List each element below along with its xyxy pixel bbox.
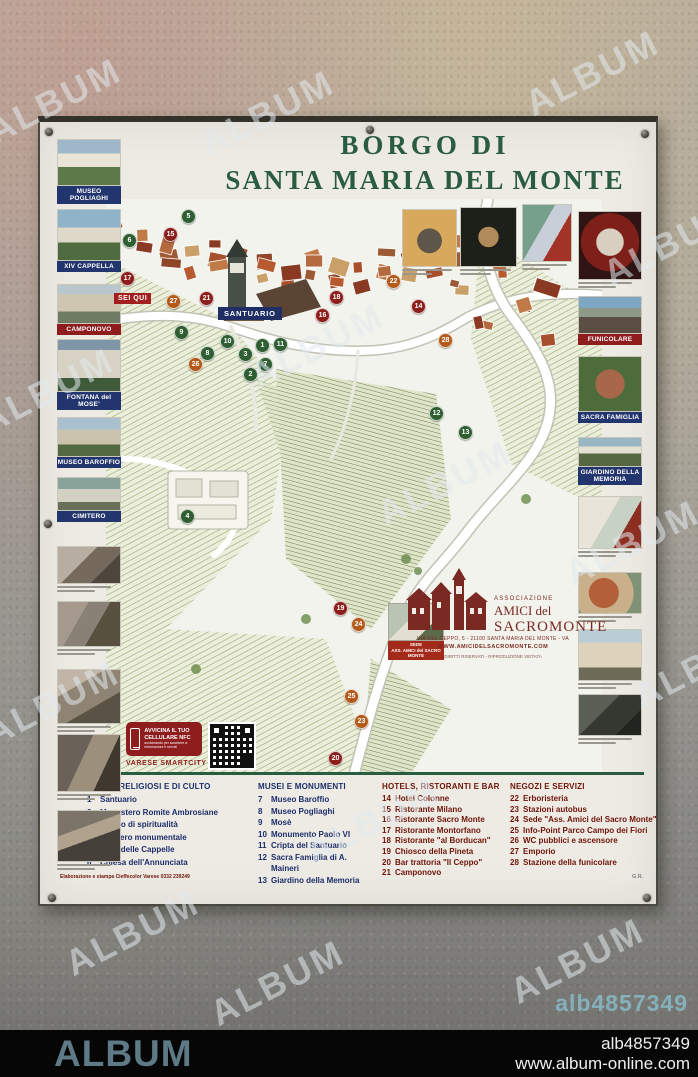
map-marker-21: 21 bbox=[199, 291, 214, 306]
association-logo-block: ASSOCIAZIONE AMICI del SACROMONTE VIA DE… bbox=[402, 564, 584, 662]
screw-bottom-left bbox=[48, 894, 56, 902]
legend-item: 19Chiosco della Pineta bbox=[382, 847, 508, 858]
map-marker-15: 15 bbox=[163, 227, 178, 242]
thumbnail-item: CAMPONOVO bbox=[57, 284, 121, 335]
legend-column-title: MUSEI E MONUMENTI bbox=[258, 782, 376, 791]
screw-left-middle bbox=[44, 520, 52, 528]
legend-item: 7Museo Baroffio bbox=[258, 794, 376, 806]
thumbnail-caption bbox=[578, 683, 642, 689]
legend-item: 8Museo Pogliaghi bbox=[258, 806, 376, 818]
legend-item: 25Info-Point Parco Campo dei Fiori bbox=[510, 826, 658, 837]
legend-item: 18Ristorante "al Borducan" bbox=[382, 836, 508, 847]
map-marker-22: 22 bbox=[386, 274, 401, 289]
association-name-2: SACROMONTE bbox=[494, 619, 584, 636]
legend-item: 26WC pubblici e ascensore bbox=[510, 836, 658, 847]
thumbnail-item bbox=[578, 629, 642, 689]
nfc-line-1: AVVICINA IL TUO bbox=[144, 728, 198, 735]
thumbnail-photo bbox=[57, 734, 121, 792]
legend-item: 22Erboristeria bbox=[510, 794, 658, 805]
legend-item: 15Ristorante Milano bbox=[382, 805, 508, 816]
print-credits: Elaborazione e stampa Cieffecolor Varese… bbox=[60, 874, 190, 880]
thumbnail-photo bbox=[57, 669, 121, 724]
map-marker-27: 27 bbox=[166, 294, 181, 309]
thumbnail-caption bbox=[578, 282, 642, 288]
map-marker-12: 12 bbox=[429, 406, 444, 421]
thumbnail-label: FUNICOLARE bbox=[578, 334, 642, 345]
author-initials: G.R. bbox=[632, 874, 643, 880]
map-marker-13: 13 bbox=[458, 425, 473, 440]
artwork-thumbnail bbox=[522, 204, 572, 270]
thumbnail-photo bbox=[57, 546, 121, 584]
thumbnail-label: CIMITERO bbox=[57, 511, 121, 522]
legend-column-title: HOTELS, RISTORANTI E BAR bbox=[382, 782, 508, 791]
album-logo: ALBUM bbox=[54, 1033, 193, 1075]
map-marker-8: 8 bbox=[200, 346, 215, 361]
thumbnail-label: FONTANA del MOSE' bbox=[57, 392, 121, 410]
thumbnail-photo bbox=[578, 356, 642, 412]
thumbnail-label: GIARDINO DELLA MEMORIA bbox=[578, 467, 642, 485]
thumbnail-label: SACRA FAMIGLIA bbox=[578, 412, 642, 423]
thumbnail-photo bbox=[57, 139, 121, 186]
artwork-thumbnail bbox=[460, 207, 517, 275]
thumbnail-photo bbox=[57, 601, 121, 647]
map-marker-14: 14 bbox=[411, 299, 426, 314]
legend-item: 9Mosè bbox=[258, 817, 376, 829]
thumbnail-label: MUSEO BAROFFIO bbox=[57, 457, 121, 468]
thumbnail-photo bbox=[578, 496, 642, 549]
thumbnail-caption bbox=[578, 738, 642, 744]
legend-column: HOTELS, RISTORANTI E BAR14Hotel Colonne1… bbox=[382, 782, 508, 879]
legend-item: 10Monumento Paolo VI bbox=[258, 829, 376, 841]
thumbnail-photo bbox=[57, 477, 121, 511]
map-marker-19: 19 bbox=[333, 601, 348, 616]
thumbnail-item: GIARDINO DELLA MEMORIA bbox=[578, 437, 642, 485]
thumbnail-item: CIMITERO bbox=[57, 477, 121, 522]
thumbnail-item bbox=[578, 572, 642, 622]
map-marker-6: 6 bbox=[122, 233, 137, 248]
thumbnail-photo bbox=[578, 211, 642, 280]
thumbnail-item bbox=[57, 669, 121, 732]
thumbnail-photo bbox=[578, 296, 642, 334]
map-marker-4: 4 bbox=[180, 509, 195, 524]
thumbnail-item: FONTANA del MOSE' bbox=[57, 339, 121, 410]
map-marker-3: 3 bbox=[238, 347, 253, 362]
varese-smartcity-label: VARESE SMARTCITY bbox=[126, 760, 207, 767]
village-silhouette-icon bbox=[404, 566, 492, 634]
thumbnail-photo bbox=[57, 284, 121, 324]
thumbnail-caption bbox=[57, 726, 121, 732]
title-line-2: SANTA MARIA DEL MONTE bbox=[200, 165, 650, 196]
thumbnail-item bbox=[578, 694, 642, 744]
association-rights: DIRITTI RISERVATI - RIPRODUZIONE VIETATA bbox=[402, 654, 584, 659]
thumbnail-item: MUSEO BAROFFIO bbox=[57, 417, 121, 468]
map-marker-10: 10 bbox=[220, 334, 235, 349]
thumbnail-caption bbox=[57, 586, 121, 592]
santuario-label: SANTUARIO bbox=[218, 307, 282, 320]
legend-item: 12Sacra Famiglia di A. Maineri bbox=[258, 852, 376, 875]
thumbnail-photo bbox=[57, 417, 121, 457]
screw-top-right bbox=[641, 130, 649, 138]
stock-photo-code-wall: alb4857349 bbox=[555, 990, 688, 1017]
stock-photo-code: alb4857349 bbox=[515, 1034, 690, 1054]
thumbnail-photo bbox=[578, 437, 642, 467]
thumbnail-item: FUNICOLARE bbox=[578, 296, 642, 345]
qr-code bbox=[208, 722, 256, 770]
thumbnail-label: MUSEO POGLIAGHI bbox=[57, 186, 121, 204]
thumbnail-item bbox=[578, 496, 642, 557]
legend-item: 27Emporio bbox=[510, 847, 658, 858]
thumbnail-label: XIV CAPPELLA bbox=[57, 261, 121, 272]
illustrated-map: SEI QUI SANTUARIO SEDE ASS. AMICI del SA… bbox=[106, 199, 602, 775]
association-website: WWW.AMICIDELSACROMONTE.COM bbox=[402, 644, 584, 650]
title-line-1: BORGO DI bbox=[200, 130, 650, 161]
map-sign-panel: BORGO DI SANTA MARIA DEL MONTE bbox=[38, 116, 658, 906]
legend-item: 23Stazioni autobus bbox=[510, 805, 658, 816]
legend-item: 13Giardino della Memoria bbox=[258, 875, 376, 887]
map-marker-2: 2 bbox=[243, 367, 258, 382]
legend-item: 11Cripta del Santuario bbox=[258, 840, 376, 852]
map-marker-24: 24 bbox=[351, 617, 366, 632]
thumbnail-photo bbox=[578, 629, 642, 681]
thumbnail-caption bbox=[578, 551, 642, 557]
thumbnail-item bbox=[578, 211, 642, 288]
screw-top-left bbox=[45, 128, 53, 136]
legend-item: 20Bar trattoria "Il Ceppo" bbox=[382, 858, 508, 869]
legend-divider bbox=[58, 772, 644, 775]
map-marker-25: 25 bbox=[344, 689, 359, 704]
map-marker-18: 18 bbox=[329, 290, 344, 305]
thumbnail-caption bbox=[57, 864, 121, 870]
map-marker-5: 5 bbox=[181, 209, 196, 224]
thumbnail-item: MUSEO POGLIAGHI bbox=[57, 139, 121, 204]
map-marker-28: 28 bbox=[438, 333, 453, 348]
legend-column-title: NEGOZI E SERVIZI bbox=[510, 782, 658, 791]
thumbnail-item bbox=[57, 734, 121, 800]
thumbnail-label: CAMPONOVO bbox=[57, 324, 121, 335]
thumbnail-caption bbox=[57, 794, 121, 800]
thumbnail-photo bbox=[578, 572, 642, 614]
screw-bottom-right bbox=[643, 894, 651, 902]
map-marker-23: 23 bbox=[354, 714, 369, 729]
thumbnail-photo bbox=[578, 694, 642, 736]
artwork-thumbnail bbox=[402, 209, 457, 275]
map-marker-26: 26 bbox=[188, 357, 203, 372]
map-marker-1: 1 bbox=[255, 338, 270, 353]
legend-item: 16Ristorante Sacro Monte bbox=[382, 815, 508, 826]
legend-column: MUSEI E MONUMENTI7Museo Baroffio8Museo P… bbox=[258, 782, 376, 886]
thumbnail-item: SACRA FAMIGLIA bbox=[578, 356, 642, 423]
legend-column: NEGOZI E SERVIZI22Erboristeria23Stazioni… bbox=[510, 782, 658, 868]
nfc-badge: AVVICINA IL TUO CELLULARE NFC avvicinand… bbox=[126, 722, 202, 756]
legend-item: 28Stazione della funicolare bbox=[510, 858, 658, 869]
artwork-photo bbox=[522, 204, 572, 262]
association-name-1: AMICI del bbox=[494, 603, 584, 619]
nfc-subtext: avvicinando per accedere a informazioni … bbox=[144, 742, 198, 750]
legend-item: 17Ristorante Montorfano bbox=[382, 826, 508, 837]
thumbnail-caption bbox=[57, 649, 121, 655]
thumbnail-photo bbox=[57, 209, 121, 261]
thumbnail-item bbox=[57, 810, 121, 870]
association-address: VIA DEL CEPPO, 5 - 21100 SANTA MARIA DEL… bbox=[402, 636, 584, 642]
thumbnail-item bbox=[57, 546, 121, 592]
map-marker-7: 7 bbox=[258, 357, 273, 372]
legend-item: 24Sede "Ass. Amici del Sacro Monte" bbox=[510, 815, 658, 826]
screw-top-middle bbox=[366, 126, 374, 134]
stock-footer-bar: ALBUM alb4857349 www.album-online.com bbox=[0, 1030, 698, 1077]
artwork-photo bbox=[460, 207, 517, 267]
map-marker-20: 20 bbox=[328, 751, 343, 766]
thumbnail-item: XIV CAPPELLA bbox=[57, 209, 121, 272]
stock-site-url: www.album-online.com bbox=[515, 1054, 690, 1074]
artwork-photo bbox=[402, 209, 457, 267]
legend-item: 14Hotel Colonne bbox=[382, 794, 508, 805]
thumbnail-item bbox=[57, 601, 121, 655]
thumbnail-photo bbox=[57, 810, 121, 862]
map-marker-9: 9 bbox=[174, 325, 189, 340]
map-marker-16: 16 bbox=[315, 308, 330, 323]
map-marker-11: 11 bbox=[273, 337, 288, 352]
association-word: ASSOCIAZIONE bbox=[494, 596, 584, 602]
map-marker-17: 17 bbox=[120, 271, 135, 286]
nfc-phone-icon bbox=[130, 728, 140, 750]
legend-item: 21Camponovo bbox=[382, 868, 508, 879]
sign-title: BORGO DI SANTA MARIA DEL MONTE bbox=[200, 130, 650, 196]
thumbnail-photo bbox=[57, 339, 121, 392]
you-are-here-label: SEI QUI bbox=[114, 293, 151, 304]
